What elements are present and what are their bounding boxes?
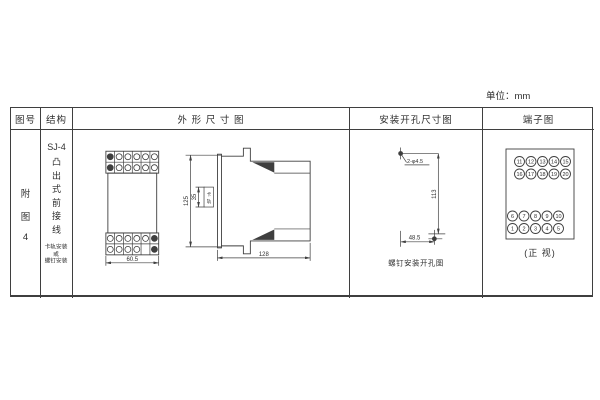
holes-label: 2-φ4.5 <box>407 159 423 165</box>
mounting-hole-drawing: 2-φ4.5 113 48.5 螺钉安装开孔图 <box>350 130 482 298</box>
terminal-number: 16 <box>516 172 522 178</box>
front-view: 60.5 <box>106 151 159 266</box>
side-front-panel <box>217 154 221 248</box>
terminal-number: 11 <box>517 160 523 166</box>
terminal-number: 2 <box>522 227 525 233</box>
unit-label: 单位：mm <box>486 88 530 102</box>
terminal-number: 5 <box>557 227 560 233</box>
side-view: 125 卡 轨 35 128 <box>184 148 310 261</box>
terminal-caption: (正 视) <box>524 247 556 258</box>
terminal-number: 19 <box>551 172 557 178</box>
case-wedge-top <box>252 162 274 172</box>
dim-mounting-height: 113 <box>432 189 438 199</box>
terminal-number: 8 <box>534 214 537 220</box>
terminal-diagram: 11 12 13 14 15 16 17 18 19 20 6 7 8 9 10… <box>483 130 594 298</box>
structure-cell: SJ-4 凸 出 式 前 接 线 卡轨安装 或 螺钉安装 <box>41 130 73 298</box>
mounting-caption: 螺钉安装开孔图 <box>388 258 444 268</box>
terminal-number: 14 <box>551 160 557 166</box>
rail-char: 轨 <box>207 198 212 205</box>
terminal-number: 18 <box>539 172 545 178</box>
dimension-table: 图号 结构 外 形 尺 寸 图 安装开孔尺寸图 端子图 附 图 4 SJ-4 凸… <box>10 107 593 297</box>
header-cell-figure-no: 图号 <box>11 108 41 130</box>
dim-rail-height: 35 <box>192 193 198 200</box>
terminal-number: 7 <box>522 214 525 220</box>
figure-no-char: 图 <box>21 209 31 223</box>
front-body <box>108 173 157 233</box>
terminal-number: 1 <box>511 227 514 233</box>
dim-mounting-width: 48.5 <box>409 235 421 241</box>
structure-type-char: 式 <box>52 183 61 197</box>
header-cell-mounting: 安装开孔尺寸图 <box>350 108 483 130</box>
dim-side-depth: 128 <box>259 252 270 258</box>
mounting-note: 卡轨安装 或 螺钉安装 <box>45 245 68 266</box>
figure-no-cell: 附 图 4 <box>11 130 41 298</box>
mounting-note-line: 或 <box>45 252 68 259</box>
structure-type-char: 出 <box>52 170 61 184</box>
terminal-diagram-cell: 11 12 13 14 15 16 17 18 19 20 6 7 8 9 10… <box>483 130 594 298</box>
structure-type-char: 前 <box>52 197 61 211</box>
terminal-number: 12 <box>528 160 534 166</box>
outline-drawing-cell: 60.5 125 卡 轨 35 <box>73 130 350 298</box>
terminal-number: 3 <box>534 227 537 233</box>
figure-no-char: 附 <box>21 186 31 200</box>
terminal-number: 6 <box>511 214 514 220</box>
header-cell-terminal: 端子图 <box>483 108 594 130</box>
terminal-number: 13 <box>539 160 545 166</box>
terminal-number: 15 <box>562 160 568 166</box>
structure-type-char: 接 <box>52 210 61 224</box>
structure-type-char: 凸 <box>52 156 61 170</box>
header-cell-outline: 外 形 尺 寸 图 <box>73 108 350 130</box>
case-wedge-bottom <box>252 229 274 239</box>
terminal-number: 17 <box>528 172 534 178</box>
dim-side-height: 125 <box>184 195 190 206</box>
mounting-drawing-cell: 2-φ4.5 113 48.5 螺钉安装开孔图 <box>350 130 483 298</box>
terminal-group-top: 11 12 13 14 15 16 17 18 19 20 <box>515 157 571 180</box>
dim-front-width: 60.5 <box>126 257 138 263</box>
terminal-number: 9 <box>545 214 548 220</box>
model-label: SJ-4 <box>47 142 66 152</box>
figure-no-char: 4 <box>23 232 28 243</box>
terminal-number: 4 <box>545 227 548 233</box>
rail-char: 卡 <box>207 191 212 198</box>
header-cell-structure: 结构 <box>41 108 73 130</box>
structure-type-char: 线 <box>52 224 61 238</box>
mounting-note-line: 螺钉安装 <box>45 259 68 266</box>
outline-drawing: 60.5 125 卡 轨 35 <box>73 130 349 298</box>
terminal-number: 20 <box>562 172 568 178</box>
mounting-note-line: 卡轨安装 <box>45 245 68 252</box>
terminal-number: 10 <box>555 214 561 220</box>
terminal-group-bottom: 6 7 8 9 10 1 2 3 4 5 <box>508 211 564 234</box>
